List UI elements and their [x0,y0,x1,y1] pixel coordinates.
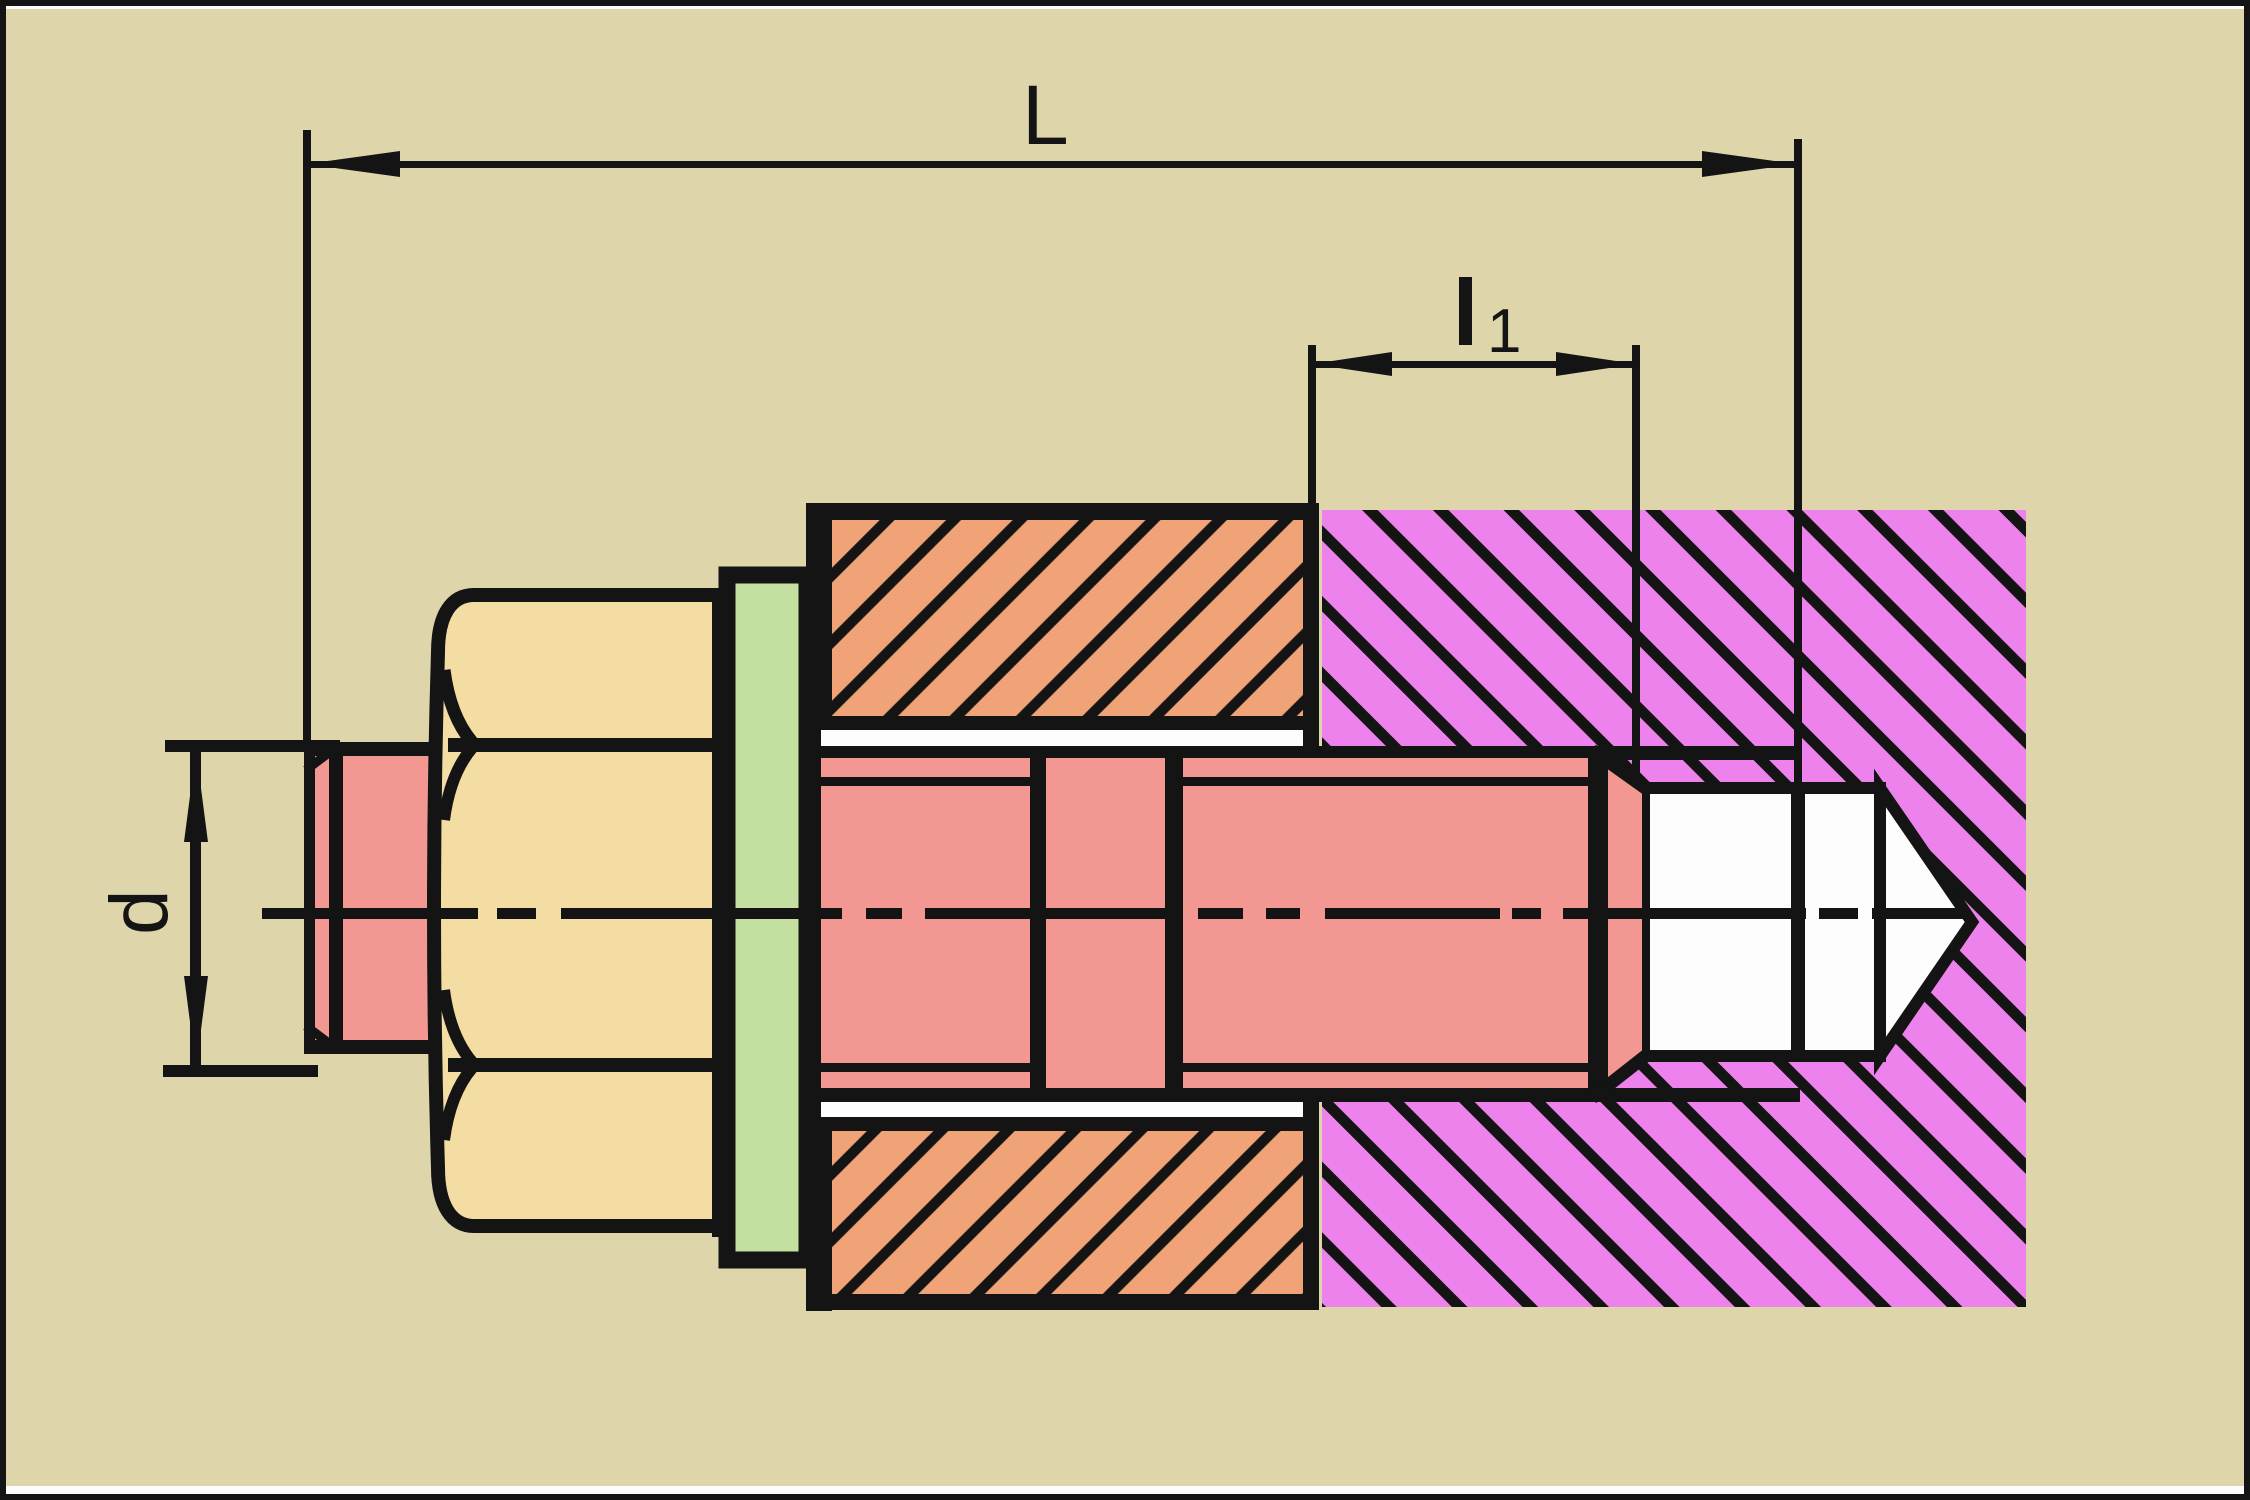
svg-text:1: 1 [1487,297,1521,366]
svg-text:d: d [94,889,185,935]
svg-text:L: L [1022,68,1069,162]
